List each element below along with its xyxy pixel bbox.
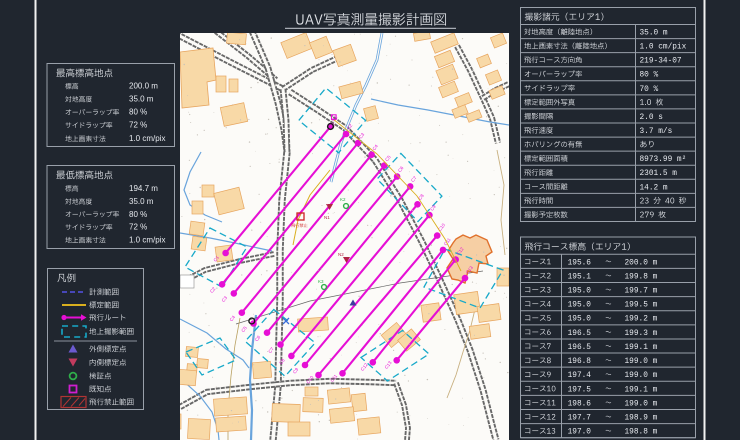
- svg-text:2.0 s: 2.0 s: [640, 114, 664, 122]
- svg-text:8973.99 m²: 8973.99 m²: [640, 155, 687, 164]
- svg-text:199.3 m: 199.3 m: [625, 330, 658, 338]
- svg-text:196.5: 196.5: [568, 344, 592, 352]
- svg-text:194.7 m: 194.7 m: [129, 184, 158, 193]
- svg-text:200.0 m: 200.0 m: [129, 82, 158, 91]
- svg-text:199.1 m: 199.1 m: [625, 344, 658, 352]
- svg-text:80 %: 80 %: [129, 108, 147, 117]
- svg-text:198.6: 198.6: [568, 400, 592, 408]
- svg-text:80 %: 80 %: [640, 72, 659, 80]
- svg-text:199.1 m: 199.1 m: [625, 386, 658, 394]
- svg-text:35.0 m: 35.0 m: [640, 30, 668, 38]
- svg-text:80 %: 80 %: [129, 210, 147, 219]
- svg-text:198.9 m: 198.9 m: [625, 415, 658, 423]
- svg-text:N1: N1: [324, 215, 330, 220]
- svg-text:N2: N2: [338, 252, 344, 257]
- svg-text:219-34-07: 219-34-07: [640, 58, 682, 66]
- svg-text:196.8: 196.8: [568, 358, 592, 366]
- svg-text:200.0 m: 200.0 m: [625, 259, 658, 267]
- svg-text:199.5 m: 199.5 m: [625, 302, 658, 310]
- svg-text:197.0: 197.0: [568, 429, 592, 437]
- svg-text:197.4: 197.4: [568, 372, 592, 380]
- svg-text:195.0: 195.0: [568, 302, 592, 310]
- svg-text:1.0 cm/pix: 1.0 cm/pix: [129, 236, 165, 245]
- svg-text:70 %: 70 %: [640, 86, 659, 94]
- svg-text:199.2 m: 199.2 m: [625, 316, 658, 324]
- svg-text:1.0 cm/pix: 1.0 cm/pix: [640, 44, 687, 52]
- svg-text:72 %: 72 %: [129, 121, 147, 130]
- svg-text:1.0 cm/pix: 1.0 cm/pix: [129, 134, 165, 143]
- svg-text:K2: K2: [340, 197, 346, 202]
- svg-text:197.5: 197.5: [568, 386, 592, 394]
- svg-text:199.0 m: 199.0 m: [625, 372, 658, 380]
- svg-text:199.8 m: 199.8 m: [625, 273, 658, 281]
- svg-text:195.1: 195.1: [568, 273, 592, 281]
- svg-text:199.7 m: 199.7 m: [625, 288, 658, 296]
- svg-text:195.0: 195.0: [568, 288, 592, 296]
- svg-text:72 %: 72 %: [129, 223, 147, 232]
- svg-text:3.7 m/s: 3.7 m/s: [640, 128, 673, 136]
- svg-text:196.5: 196.5: [568, 330, 592, 338]
- svg-text:199.0 m: 199.0 m: [625, 358, 658, 366]
- svg-text:199.0 m: 199.0 m: [625, 400, 658, 408]
- svg-text:35.0 m: 35.0 m: [129, 95, 154, 104]
- svg-text:K3: K3: [318, 279, 324, 284]
- svg-text:195.0: 195.0: [568, 316, 592, 324]
- svg-text:35.0 m: 35.0 m: [129, 197, 154, 206]
- svg-text:195.6: 195.6: [568, 259, 592, 267]
- svg-text:198.8 m: 198.8 m: [625, 429, 658, 437]
- svg-text:2301.5 m: 2301.5 m: [640, 170, 678, 178]
- svg-text:14.2 m: 14.2 m: [640, 184, 668, 192]
- svg-text:197.7: 197.7: [568, 415, 592, 423]
